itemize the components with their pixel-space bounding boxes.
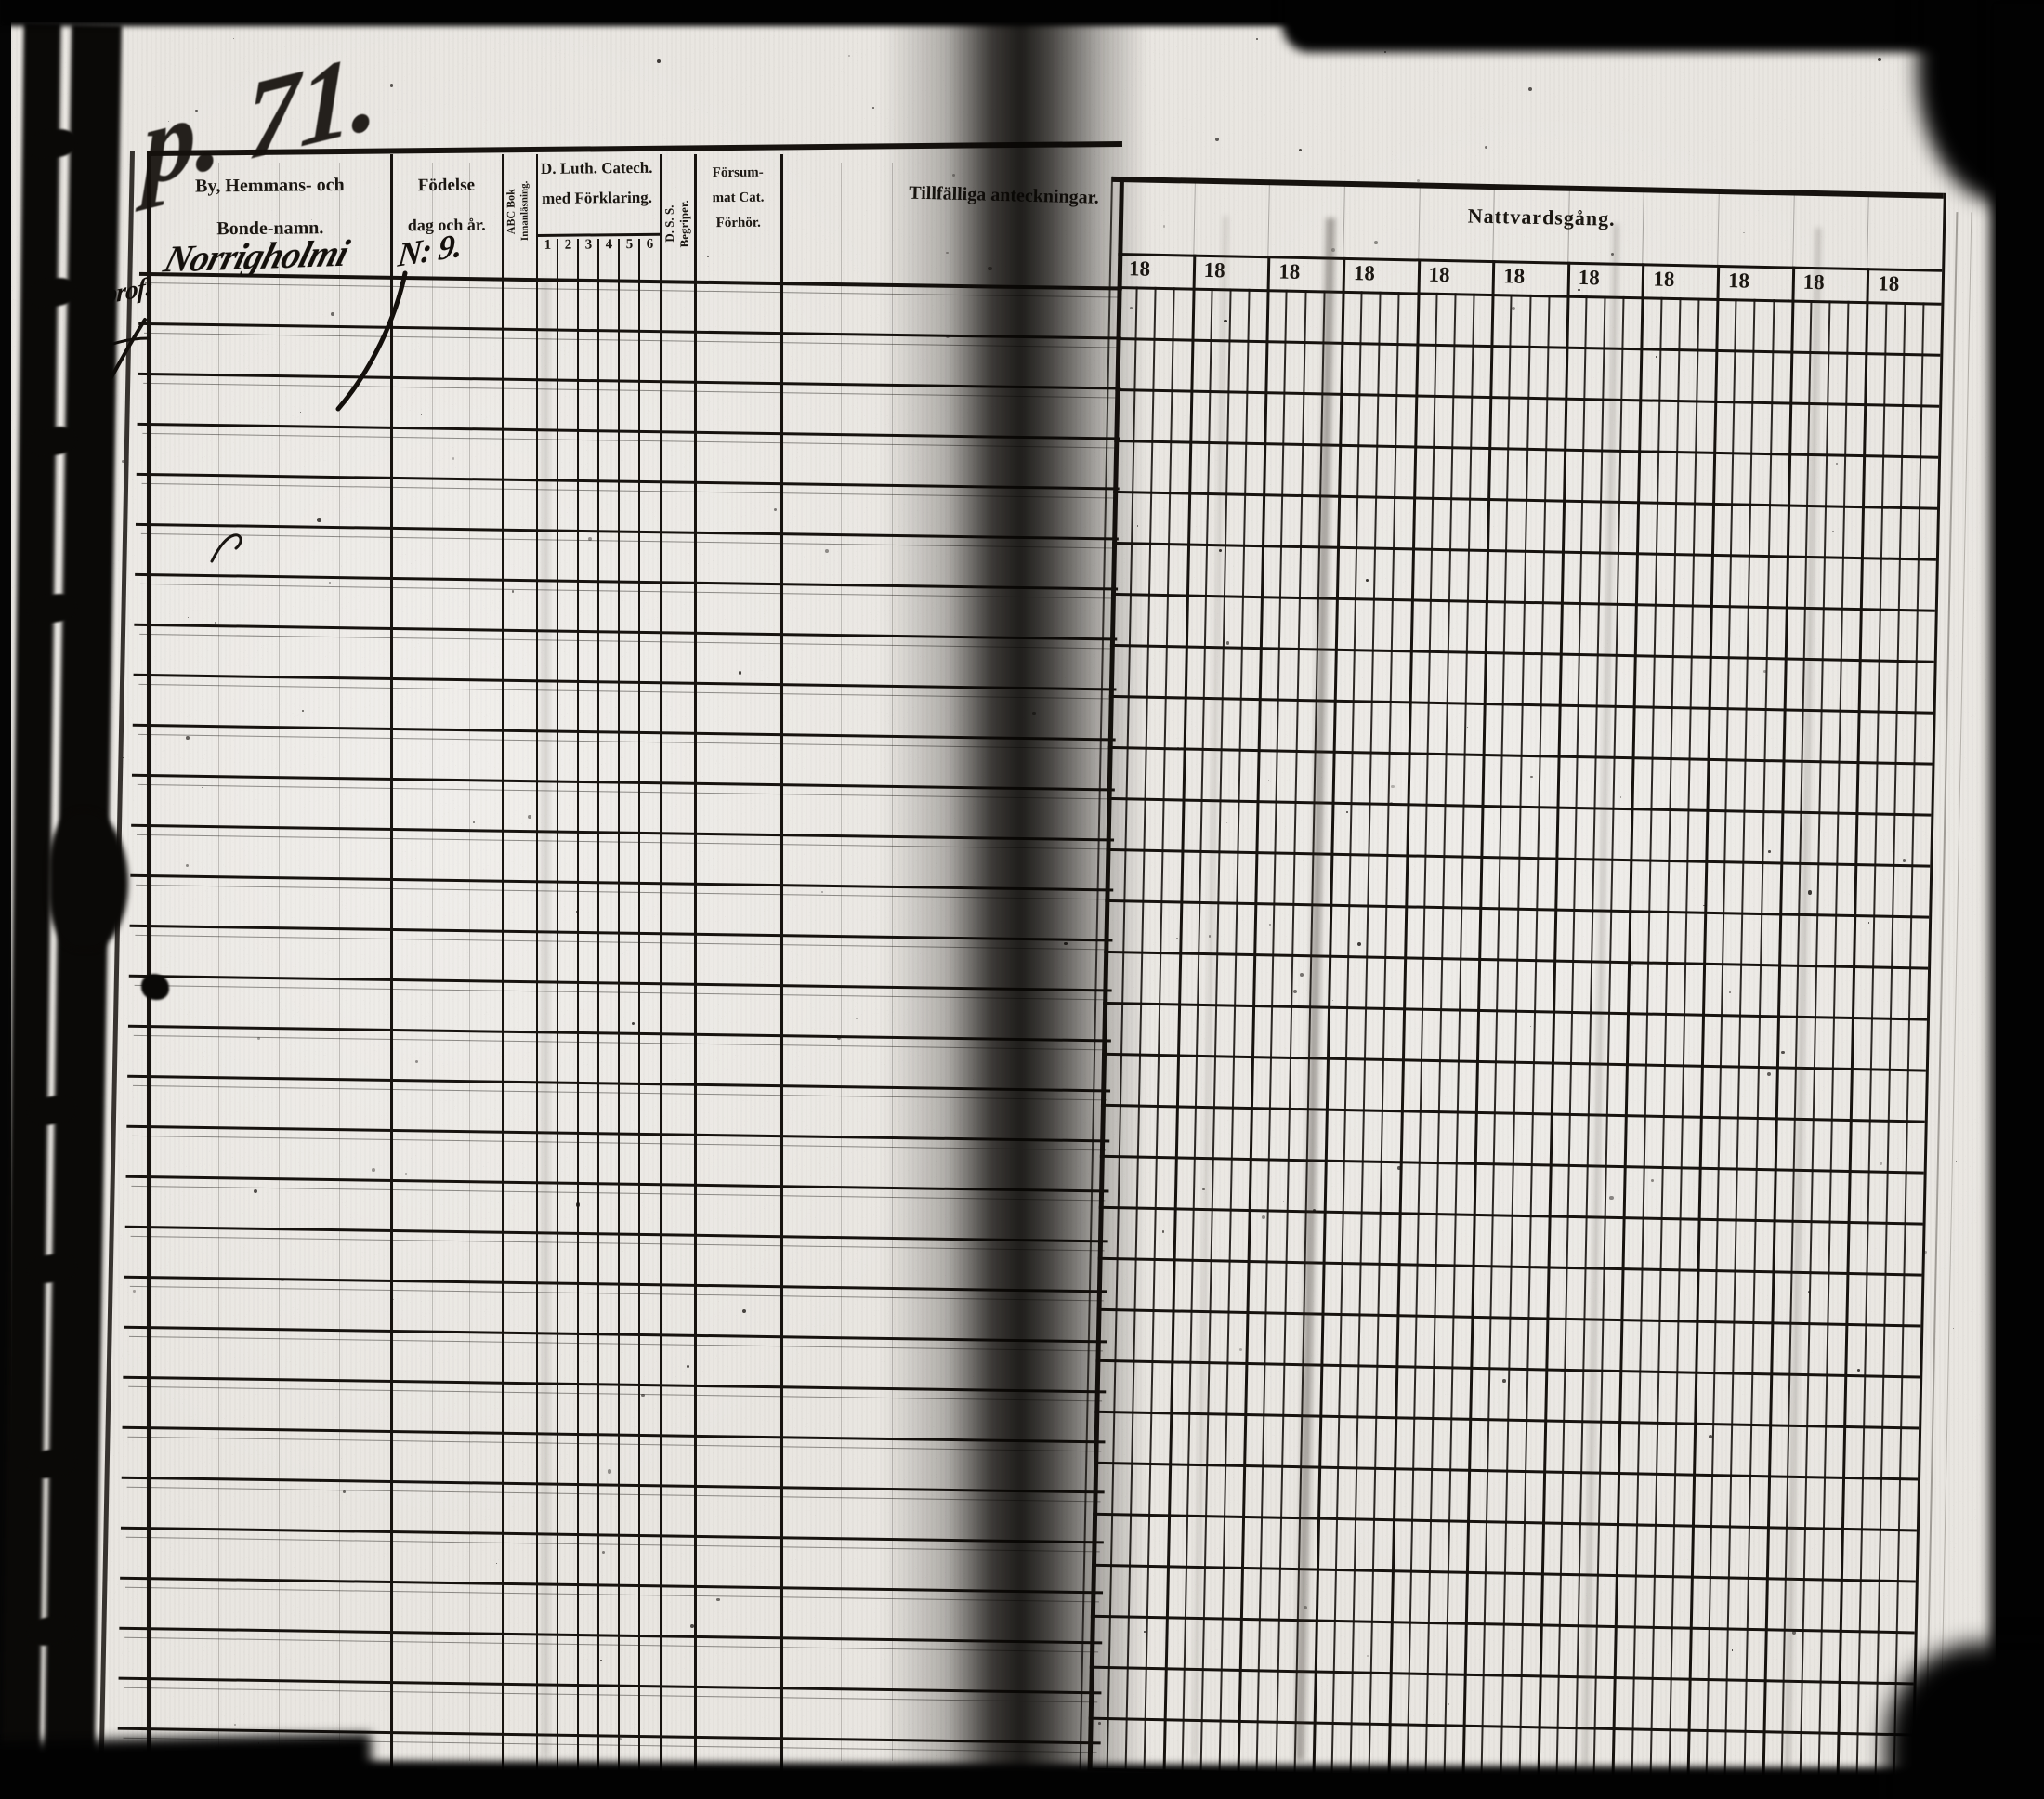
bottom-left-corner [0,1734,373,1799]
scanned-book-spread: By, Hemmans- och Bonde-namn. Födelse dag… [0,0,2044,1799]
right-edge [1990,0,2044,1799]
bottom-right-corner [1886,1643,2044,1799]
photo-vignette [0,0,2044,1799]
